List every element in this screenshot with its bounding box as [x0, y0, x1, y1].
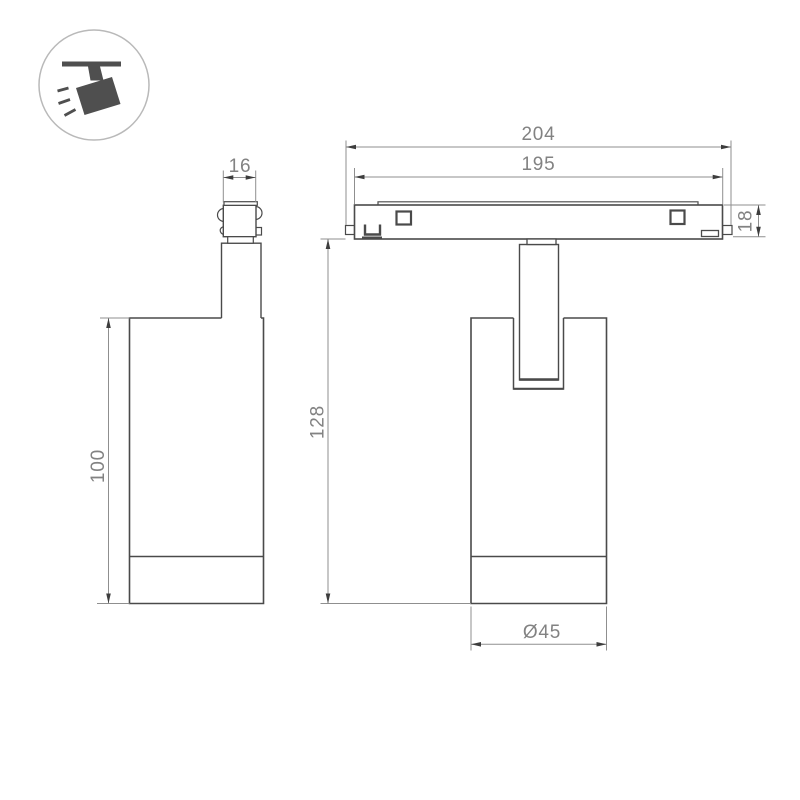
dimension-adapter-width: 16 [223, 156, 255, 203]
dimension-body-diameter: Ø45 [471, 607, 607, 651]
technical-drawing: 16 204 195 18 100 [0, 0, 800, 800]
track-spotlight-icon [39, 30, 149, 140]
arrowhead-right [721, 145, 731, 150]
dimension-value: 18 [736, 210, 757, 233]
front-view [346, 202, 733, 604]
adapter-neck [228, 237, 254, 244]
track-tab-right [723, 226, 733, 235]
arrowhead-left [471, 642, 481, 647]
drawing-page: 16 204 195 18 100 [0, 0, 800, 800]
arrowhead-up [756, 205, 761, 215]
stem-side [222, 243, 262, 318]
arrowhead-right [597, 642, 607, 647]
body-side [130, 318, 264, 604]
arrowhead-left [355, 175, 365, 180]
icon-ceiling-bar [62, 62, 121, 67]
arrowhead-down [326, 594, 331, 604]
adapter-top-plate [224, 202, 257, 206]
arrowhead-up [106, 318, 111, 328]
adapter-box [223, 205, 256, 236]
dimension-value: 128 [308, 405, 329, 439]
side-view [130, 202, 264, 604]
dimension-value: 16 [229, 156, 252, 177]
arrowhead-left [346, 145, 356, 150]
arrowhead-up [326, 239, 331, 249]
arrowhead-down [756, 227, 761, 237]
arrowhead-right [713, 175, 723, 180]
dimension-body-height: 100 [88, 318, 130, 604]
dimension-track-inner-length: 195 [355, 154, 723, 204]
stem-collar [527, 239, 556, 245]
dimension-value: 195 [521, 154, 555, 175]
track-bar [355, 205, 723, 239]
track-tab-left [346, 226, 355, 235]
dimension-value: 204 [521, 124, 555, 145]
stem-front [520, 245, 559, 381]
dimension-value: 100 [88, 449, 109, 483]
arrowhead-down [106, 594, 111, 604]
dimension-total-height: 128 [308, 239, 472, 604]
dimension-value: Ø45 [523, 622, 561, 643]
